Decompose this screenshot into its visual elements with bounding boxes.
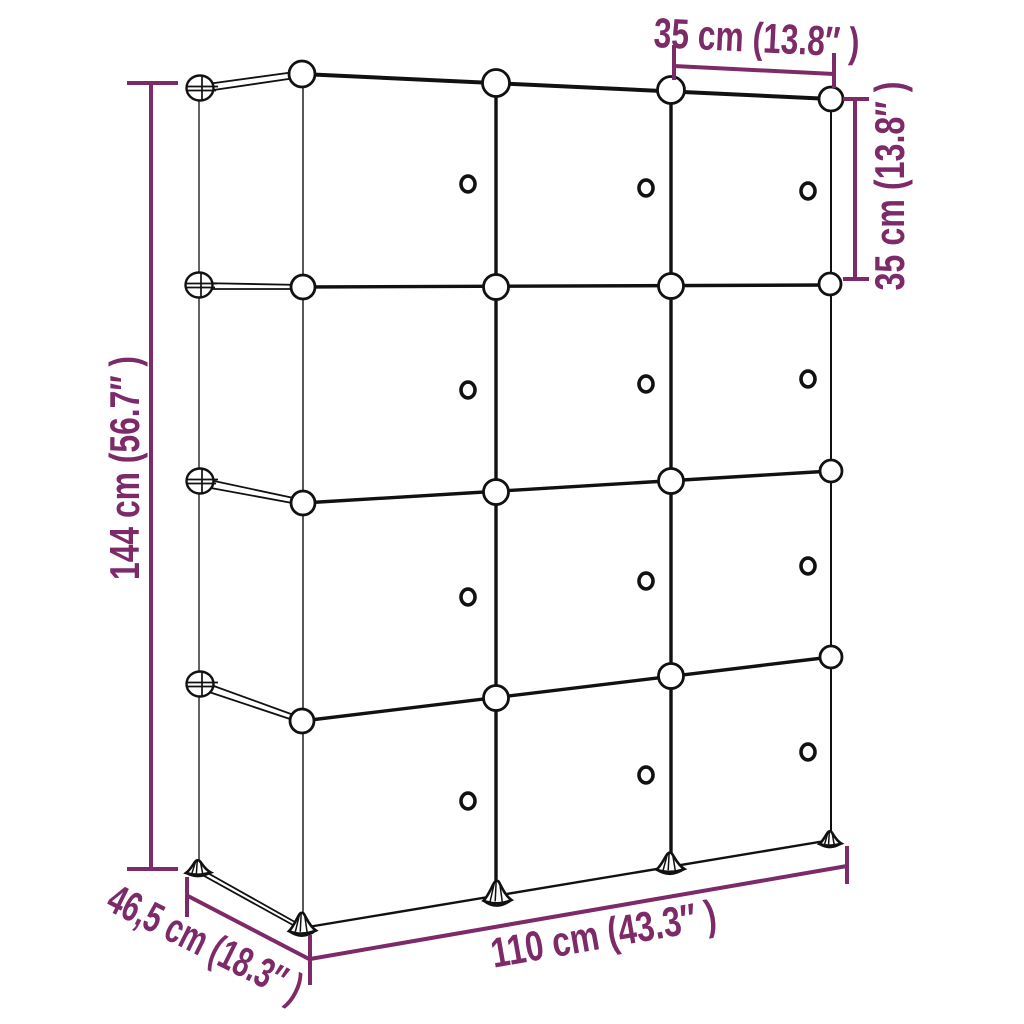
svg-text:110 cm (43.3″ ): 110 cm (43.3″ ) <box>487 891 720 977</box>
svg-text:35 cm (13.8″ ): 35 cm (13.8″ ) <box>866 82 913 291</box>
svg-text:35 cm (13.8″ ): 35 cm (13.8″ ) <box>653 9 861 66</box>
svg-text:144 cm (56.7″ ): 144 cm (56.7″ ) <box>101 356 148 580</box>
